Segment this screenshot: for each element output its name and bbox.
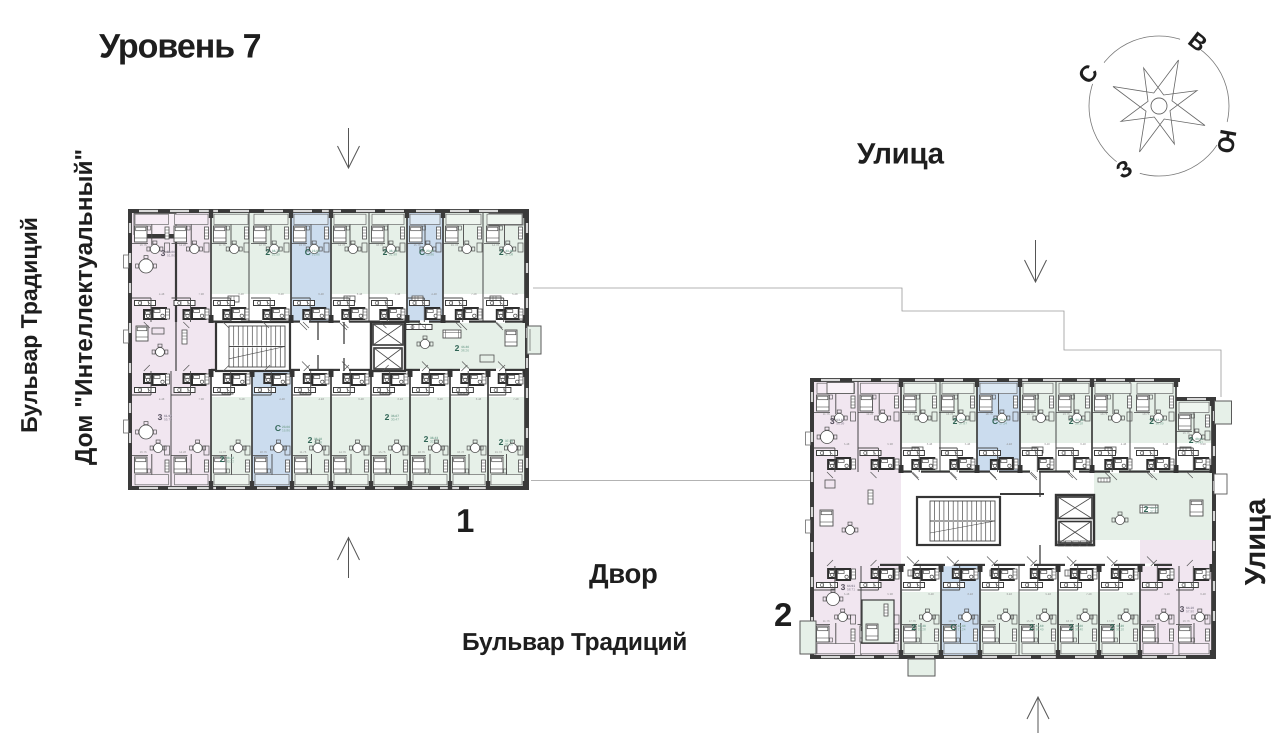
svg-text:6.48: 6.48 — [1080, 442, 1086, 446]
svg-text:3.48: 3.48 — [1044, 442, 1050, 446]
svg-text:5.48: 5.48 — [965, 442, 971, 446]
svg-text:2: 2 — [383, 247, 388, 257]
svg-text:3: 3 — [158, 412, 163, 422]
svg-text:7.48: 7.48 — [471, 292, 477, 296]
svg-text:2: 2 — [385, 412, 390, 422]
svg-text:7.98: 7.98 — [198, 397, 204, 401]
svg-text:2: 2 — [424, 434, 429, 444]
svg-text:2: 2 — [774, 596, 792, 633]
svg-text:2: 2 — [1110, 622, 1115, 632]
svg-text:30.47: 30.47 — [391, 418, 399, 422]
svg-text:2: 2 — [1189, 435, 1194, 445]
svg-text:2: 2 — [1069, 622, 1074, 632]
svg-text:37.87: 37.87 — [959, 422, 967, 426]
svg-text:5.48: 5.48 — [844, 442, 850, 446]
svg-text:Улица: Улица — [1240, 498, 1272, 586]
svg-text:С: С — [992, 416, 998, 426]
svg-text:С: С — [950, 622, 956, 632]
svg-text:32.59: 32.59 — [272, 253, 280, 257]
svg-text:5.48: 5.48 — [844, 592, 850, 596]
svg-text:3: 3 — [161, 248, 166, 258]
svg-text:2: 2 — [1149, 416, 1154, 426]
svg-text:51.86: 51.86 — [167, 254, 175, 258]
svg-text:2: 2 — [1144, 504, 1149, 514]
svg-text:5.48: 5.48 — [1163, 442, 1169, 446]
svg-text:2: 2 — [265, 247, 270, 257]
svg-text:16.86: 16.86 — [312, 253, 320, 257]
svg-text:2: 2 — [953, 416, 958, 426]
svg-text:5.48: 5.48 — [395, 292, 401, 296]
svg-text:19.26: 19.26 — [866, 412, 873, 416]
svg-text:6.48: 6.48 — [238, 292, 244, 296]
svg-text:3.48: 3.48 — [1164, 592, 1170, 596]
svg-text:3: 3 — [841, 582, 846, 592]
svg-text:6.48: 6.48 — [358, 397, 364, 401]
svg-text:Улица: Улица — [857, 138, 945, 171]
svg-text:Двор: Двор — [589, 558, 658, 589]
svg-text:15.76: 15.76 — [495, 450, 502, 454]
svg-text:4.48: 4.48 — [431, 292, 437, 296]
svg-text:С: С — [305, 247, 311, 257]
svg-text:56.99: 56.99 — [836, 422, 844, 426]
svg-text:5.98: 5.98 — [887, 592, 893, 596]
svg-text:18.76: 18.76 — [418, 450, 425, 454]
svg-text:6.48: 6.48 — [357, 292, 363, 296]
svg-text:7.98: 7.98 — [198, 292, 204, 296]
svg-text:16.86: 16.86 — [426, 253, 434, 257]
svg-text:13.76: 13.76 — [1100, 412, 1107, 416]
svg-text:38.18: 38.18 — [1075, 422, 1083, 426]
svg-text:3: 3 — [1180, 604, 1185, 614]
svg-text:58.71: 58.71 — [847, 588, 855, 592]
svg-text:5.48: 5.48 — [1045, 592, 1051, 596]
svg-text:Дом "Интеллектуальный": Дом "Интеллектуальный" — [71, 149, 98, 465]
svg-text:2: 2 — [911, 622, 916, 632]
svg-text:Уровень 7: Уровень 7 — [99, 28, 261, 66]
svg-text:4.48: 4.48 — [318, 397, 324, 401]
svg-text:6.48: 6.48 — [1200, 592, 1206, 596]
svg-text:10.76: 10.76 — [457, 450, 464, 454]
svg-text:38.09: 38.09 — [1156, 422, 1164, 426]
svg-text:6.48: 6.48 — [927, 442, 933, 446]
svg-text:С: С — [419, 247, 425, 257]
svg-text:6.48: 6.48 — [928, 592, 934, 596]
svg-text:Ю: Ю — [1212, 127, 1242, 155]
svg-text:31.16: 31.16 — [505, 443, 513, 447]
svg-text:2: 2 — [1069, 416, 1074, 426]
svg-text:35.10: 35.10 — [1116, 628, 1124, 632]
svg-text:4.48: 4.48 — [159, 397, 165, 401]
svg-text:15.76: 15.76 — [378, 450, 385, 454]
svg-text:3.48: 3.48 — [437, 397, 443, 401]
svg-text:31.98: 31.98 — [314, 441, 322, 445]
svg-text:38.26: 38.26 — [461, 349, 469, 353]
svg-text:3.48: 3.48 — [1006, 592, 1012, 596]
svg-text:34.41: 34.41 — [1195, 441, 1203, 445]
svg-text:7.48: 7.48 — [1086, 592, 1092, 596]
svg-text:16.76: 16.76 — [1147, 619, 1154, 623]
svg-text:33.22: 33.22 — [226, 460, 234, 464]
svg-text:16.86: 16.86 — [282, 429, 290, 433]
svg-text:57.90: 57.90 — [1186, 610, 1194, 614]
svg-text:4.48: 4.48 — [159, 292, 165, 296]
svg-text:6.48: 6.48 — [318, 292, 324, 296]
svg-text:4.48: 4.48 — [279, 397, 285, 401]
svg-text:3.48: 3.48 — [476, 397, 482, 401]
svg-text:11.76: 11.76 — [219, 243, 226, 247]
svg-text:32.28: 32.28 — [918, 628, 926, 632]
svg-text:12.76: 12.76 — [987, 619, 994, 623]
svg-text:30.40: 30.40 — [1075, 628, 1083, 632]
svg-text:14.76: 14.76 — [338, 243, 345, 247]
svg-text:2: 2 — [1029, 622, 1034, 632]
svg-text:14.26: 14.26 — [179, 450, 186, 454]
svg-text:55.75: 55.75 — [164, 418, 172, 422]
svg-text:11.76: 11.76 — [300, 450, 307, 454]
svg-text:6.48: 6.48 — [278, 292, 284, 296]
svg-text:5.48: 5.48 — [512, 292, 518, 296]
svg-text:4.48: 4.48 — [1006, 442, 1012, 446]
svg-text:16.76: 16.76 — [1183, 619, 1190, 623]
svg-text:Бульвар Традиций: Бульвар Традиций — [16, 217, 42, 433]
svg-text:С: С — [275, 423, 281, 433]
svg-text:3: 3 — [830, 416, 835, 426]
svg-text:5.98: 5.98 — [887, 442, 893, 446]
svg-text:2: 2 — [308, 435, 313, 445]
svg-text:2: 2 — [455, 343, 460, 353]
svg-text:6.48: 6.48 — [397, 397, 403, 401]
svg-text:31.98: 31.98 — [389, 253, 397, 257]
svg-text:15.76: 15.76 — [451, 243, 458, 247]
svg-text:38.49: 38.49 — [1036, 628, 1044, 632]
svg-text:2: 2 — [499, 437, 504, 447]
svg-text:7.48: 7.48 — [513, 397, 519, 401]
svg-text:37.95: 37.95 — [1150, 510, 1158, 514]
svg-text:32.23: 32.23 — [430, 440, 438, 444]
svg-text:6.48: 6.48 — [967, 592, 973, 596]
svg-text:Бульвар Традиций: Бульвар Традиций — [462, 629, 687, 656]
svg-text:17.76: 17.76 — [908, 412, 915, 416]
svg-text:2: 2 — [499, 247, 504, 257]
svg-text:11.76: 11.76 — [823, 619, 830, 623]
svg-text:16.76: 16.76 — [140, 243, 147, 247]
svg-text:14.76: 14.76 — [339, 450, 346, 454]
svg-text:14.26: 14.26 — [179, 243, 186, 247]
svg-text:13.76: 13.76 — [1027, 412, 1034, 416]
svg-text:6.48: 6.48 — [239, 397, 245, 401]
svg-text:10.76: 10.76 — [260, 450, 267, 454]
svg-text:37.08: 37.08 — [505, 253, 513, 257]
svg-text:17.24: 17.24 — [958, 628, 966, 632]
svg-text:2: 2 — [220, 454, 225, 464]
svg-text:5.48: 5.48 — [1127, 592, 1133, 596]
svg-text:16.76: 16.76 — [140, 450, 147, 454]
svg-text:4.48: 4.48 — [1121, 442, 1127, 446]
svg-text:17.24: 17.24 — [999, 422, 1007, 426]
svg-text:1: 1 — [456, 502, 474, 539]
